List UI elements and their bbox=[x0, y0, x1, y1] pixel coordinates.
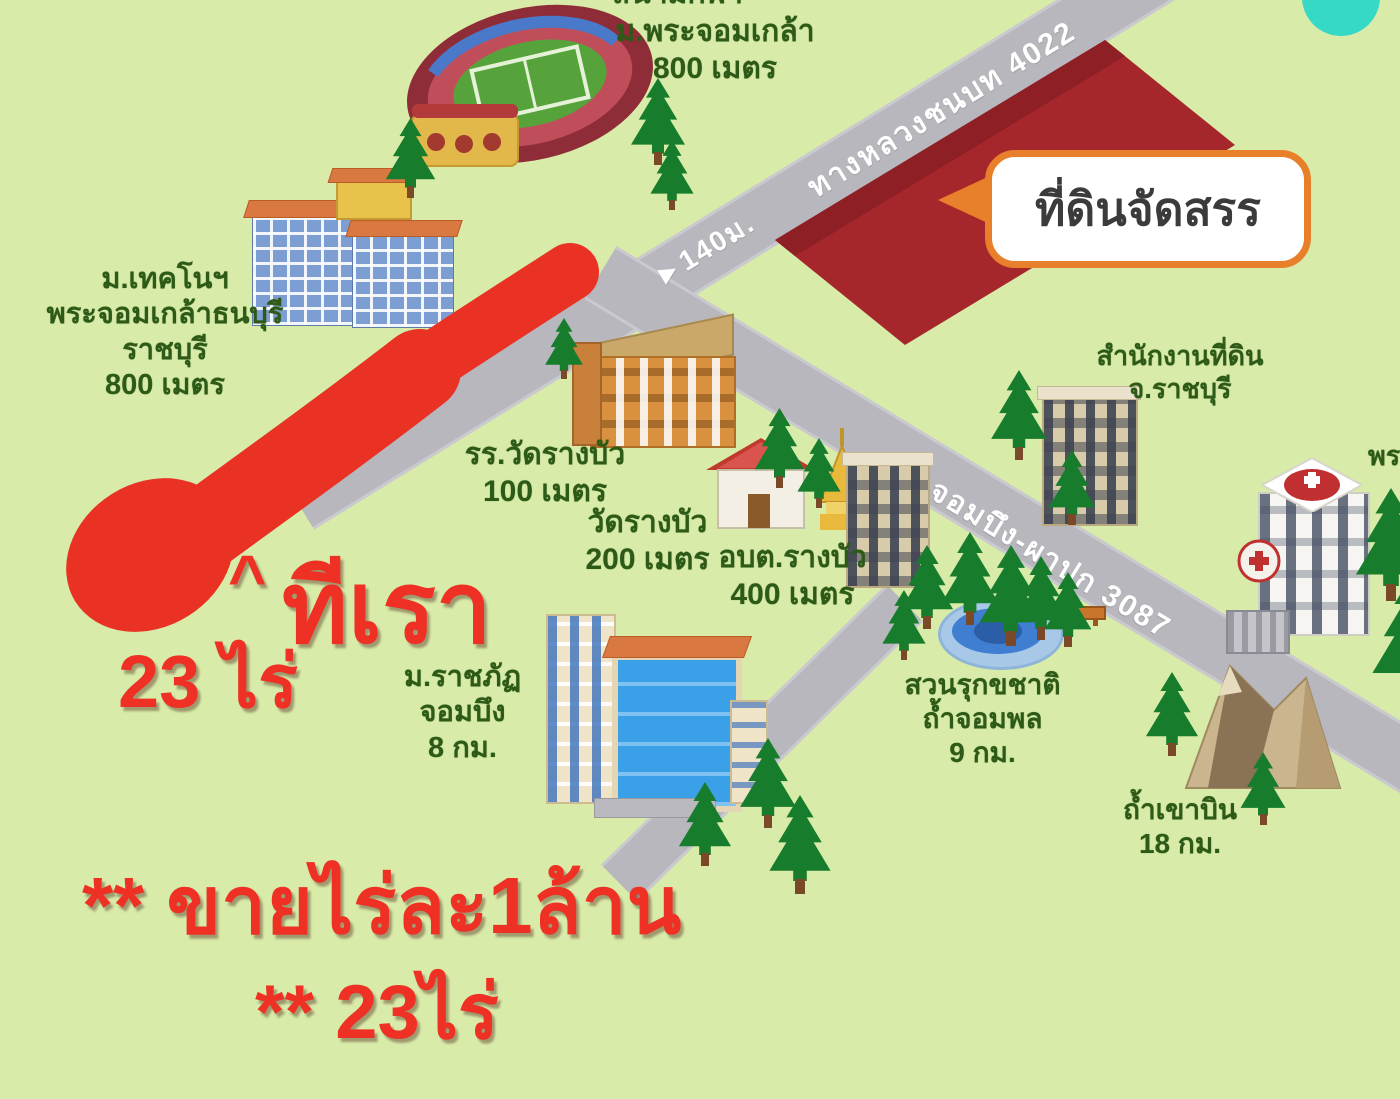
land-office-label: สำนักงานที่ดิน จ.ราชบุรี bbox=[1065, 340, 1295, 406]
hospital-front-cross-icon bbox=[1236, 538, 1282, 584]
sao-label-line1: อบต.รางบัว bbox=[680, 540, 905, 577]
sao-roof bbox=[842, 452, 934, 466]
hospital-helipad-cross-icon bbox=[1262, 458, 1362, 512]
tree-icon bbox=[795, 438, 843, 508]
rajabhat-label-line3: 8 กม. bbox=[375, 731, 550, 766]
marker-caret: ^ bbox=[228, 540, 267, 616]
land-office-label-line2: จ.ราชบุรี bbox=[1065, 373, 1295, 406]
land-sale-map: ทางหลวงชนบท 4022 ►140ม. ถ.จอมบึง-ผาปก 30… bbox=[0, 0, 1400, 1099]
cave-label-line1: ถ้ำเขาบิน bbox=[1095, 793, 1265, 827]
allocated-land-callout: ที่ดินจัดสรร bbox=[985, 150, 1311, 268]
tree-icon bbox=[1042, 572, 1094, 647]
sale-area-label: ** 23ไร่ bbox=[255, 952, 499, 1072]
sale-price-label: ** ขายไร่ละ1ล้าน bbox=[82, 842, 681, 969]
tree-icon bbox=[1368, 575, 1400, 703]
cave-label-line2: 18 กม. bbox=[1095, 827, 1265, 861]
sao-label: อบต.รางบัว 400 เมตร bbox=[680, 540, 905, 613]
edge-partial-label: พร bbox=[1368, 440, 1400, 473]
land-office-label-line1: สำนักงานที่ดิน bbox=[1065, 340, 1295, 373]
arboretum-label: สวนรุกขชาติ ถ้ำจอมพล 9 กม. bbox=[895, 668, 1070, 770]
tree-icon bbox=[1046, 450, 1098, 525]
rajabhat-label-line2: จอมบึง bbox=[375, 695, 550, 730]
arboretum-label-line1: สวนรุกขชาติ bbox=[895, 668, 1070, 702]
tree-icon bbox=[1143, 672, 1201, 756]
our-land-label: ทีเรา bbox=[282, 528, 492, 687]
arboretum-label-line2: ถ้ำจอมพล bbox=[895, 702, 1070, 736]
tree-icon bbox=[988, 370, 1050, 460]
arboretum-label-line3: 9 กม. bbox=[895, 736, 1070, 770]
tree-icon bbox=[766, 795, 834, 894]
area-label: 23 ไร่ bbox=[118, 622, 298, 740]
sao-label-line2: 400 เมตร bbox=[680, 577, 905, 614]
cave-label: ถ้ำเขาบิน 18 กม. bbox=[1095, 793, 1265, 861]
tree-icon bbox=[676, 782, 734, 866]
callout-text: ที่ดินจัดสรร bbox=[1035, 173, 1261, 246]
